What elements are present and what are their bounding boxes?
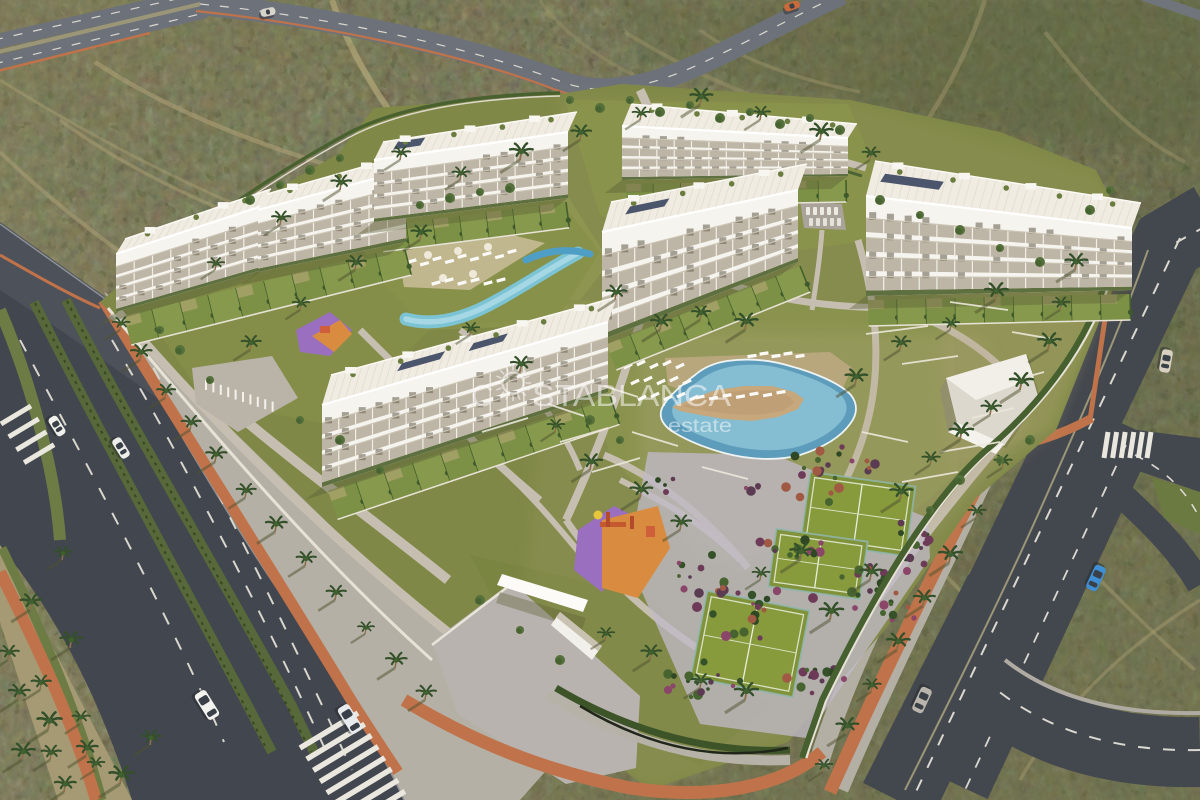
- svg-text:C: C: [471, 378, 493, 413]
- svg-text:STABLANCA: STABLANCA: [532, 378, 731, 413]
- svg-text:estate: estate: [668, 416, 732, 437]
